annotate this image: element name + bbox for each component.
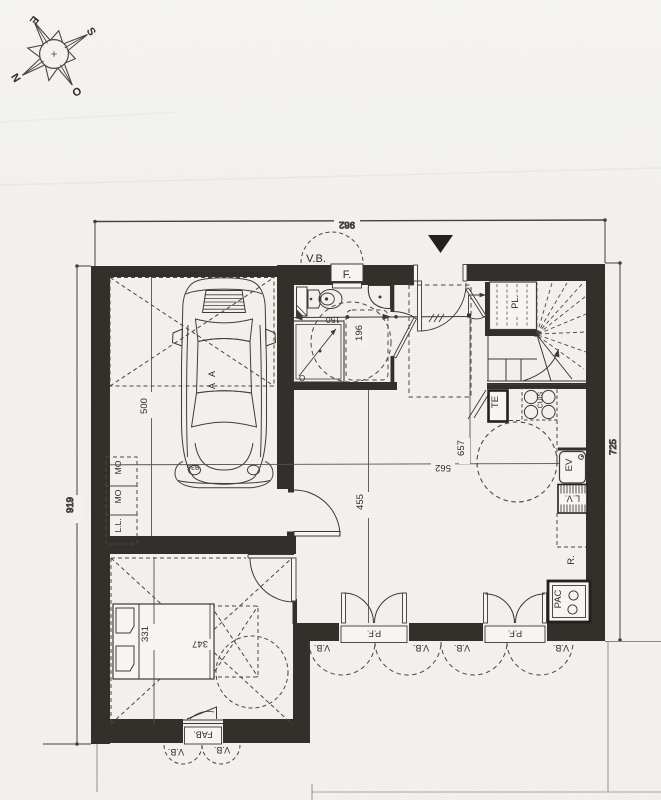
svg-text:L.L.: L.L. — [113, 518, 123, 532]
svg-text:V.B.: V.B. — [454, 643, 470, 653]
svg-text:982: 982 — [339, 219, 355, 230]
svg-text:196: 196 — [354, 325, 365, 341]
svg-text:725: 725 — [608, 439, 619, 455]
svg-text:A: A — [207, 383, 217, 389]
svg-text:PAC: PAC — [553, 589, 564, 608]
svg-text:R.: R. — [566, 555, 577, 565]
svg-text:150: 150 — [326, 315, 340, 325]
svg-text:V.B.: V.B. — [553, 643, 569, 653]
svg-text:CUIS: CUIS — [538, 391, 545, 408]
svg-text:MO: MO — [113, 460, 123, 474]
svg-text:919: 919 — [65, 497, 76, 513]
svg-text:V.B.: V.B. — [214, 745, 230, 755]
svg-text:O: O — [299, 374, 305, 383]
svg-text:L.V.: L.V. — [565, 494, 580, 504]
svg-text:TE: TE — [490, 396, 501, 408]
svg-text:EV: EV — [564, 458, 575, 471]
svg-text:FAB.: FAB. — [193, 730, 213, 740]
svg-text:F.: F. — [343, 269, 352, 281]
svg-text:P.F.: P.F. — [367, 629, 381, 639]
svg-text:V.B.: V.B. — [306, 253, 326, 265]
svg-text:P.F.: P.F. — [508, 629, 522, 639]
svg-text:562: 562 — [435, 462, 451, 473]
svg-text:331: 331 — [140, 626, 151, 642]
svg-text:PL.: PL. — [510, 295, 520, 309]
svg-text:455: 455 — [355, 494, 366, 510]
svg-text:657: 657 — [456, 440, 467, 456]
svg-text:V.B.: V.B. — [168, 747, 184, 757]
svg-text:V.B.: V.B. — [413, 643, 429, 653]
svg-text:MO: MO — [113, 489, 123, 503]
svg-text:V.B.: V.B. — [314, 643, 330, 653]
svg-text:A: A — [207, 371, 217, 377]
svg-text:347: 347 — [192, 638, 208, 649]
svg-text:500: 500 — [139, 398, 150, 414]
